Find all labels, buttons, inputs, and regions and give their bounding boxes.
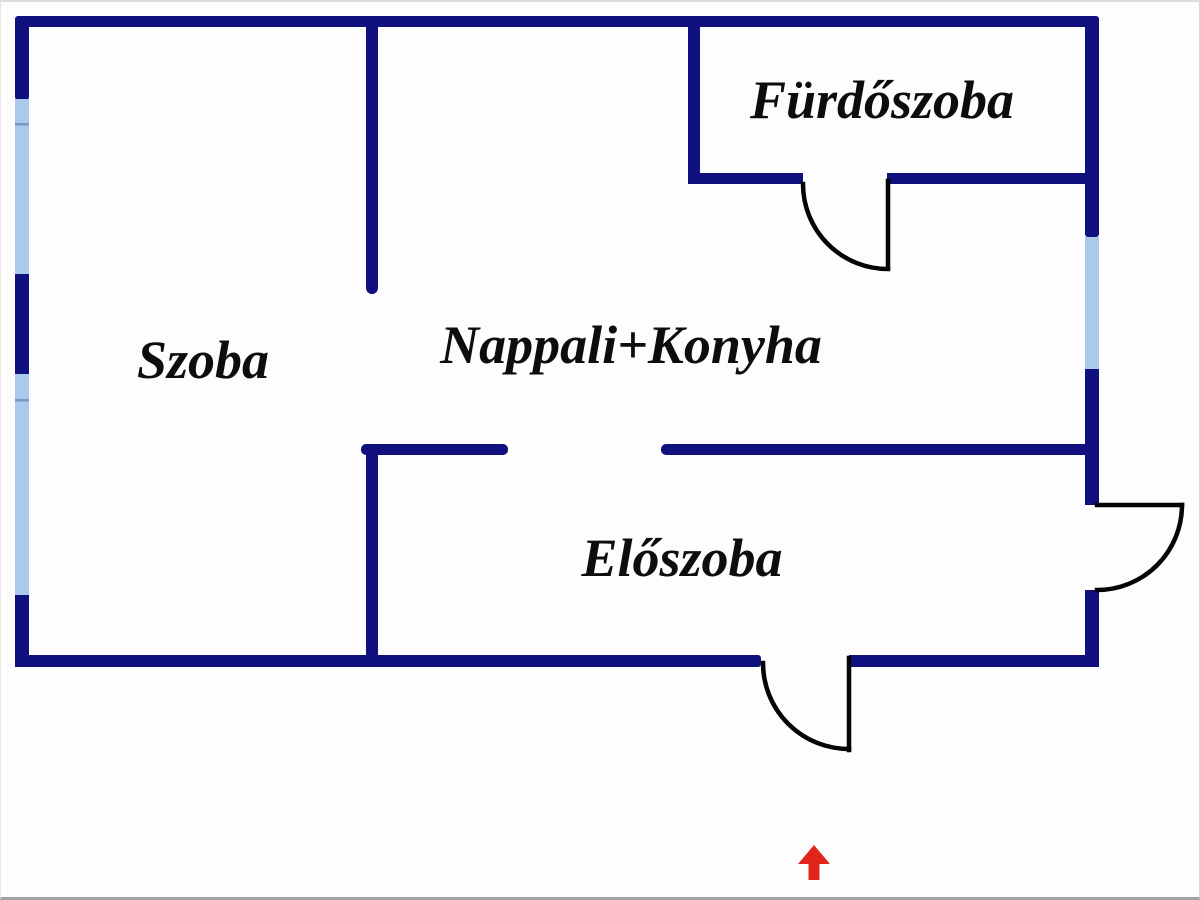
left-window-upper-divider [15,123,29,126]
right-door-arc [1097,505,1182,590]
top-wall [15,16,1099,27]
room-labels-group: Szoba Nappali+Konyha Fürdőszoba Előszoba [137,70,1014,588]
bathroom-door-arc [803,184,888,269]
bottom-wall-left [15,655,761,667]
floor-plan-drawing: Szoba Nappali+Konyha Fürdőszoba Előszoba [1,2,1200,900]
floor-plan: Szoba Nappali+Konyha Fürdőszoba Előszoba [0,0,1200,900]
right-wall-top [1085,16,1099,237]
bathroom-left-wall [688,22,700,179]
left-wall-middle [15,274,29,374]
bathroom-bottom-wall-left [688,173,803,184]
left-wall-upper [15,16,29,100]
szoba-nappali-divider-wall [366,22,378,294]
room-label-nappali-konyha: Nappali+Konyha [439,315,822,375]
room-label-szoba: Szoba [137,330,269,390]
entrance-arrow-icon [798,845,830,880]
room-label-furdoszoba: Fürdőszoba [749,70,1014,130]
eloszoba-left-wall [366,444,378,665]
left-window-lower [15,374,29,595]
bathroom-bottom-wall-right [887,173,1085,184]
right-window [1085,237,1099,369]
eloszoba-top-wall-left [361,444,508,455]
eloszoba-top-wall-right [661,444,1091,455]
entrance-door-arc [763,663,849,749]
room-label-eloszoba: Előszoba [580,528,782,588]
bottom-wall-right [849,655,1099,667]
left-window-lower-divider [15,399,29,402]
right-wall-lower [1085,590,1099,667]
right-wall-middle [1085,369,1099,505]
